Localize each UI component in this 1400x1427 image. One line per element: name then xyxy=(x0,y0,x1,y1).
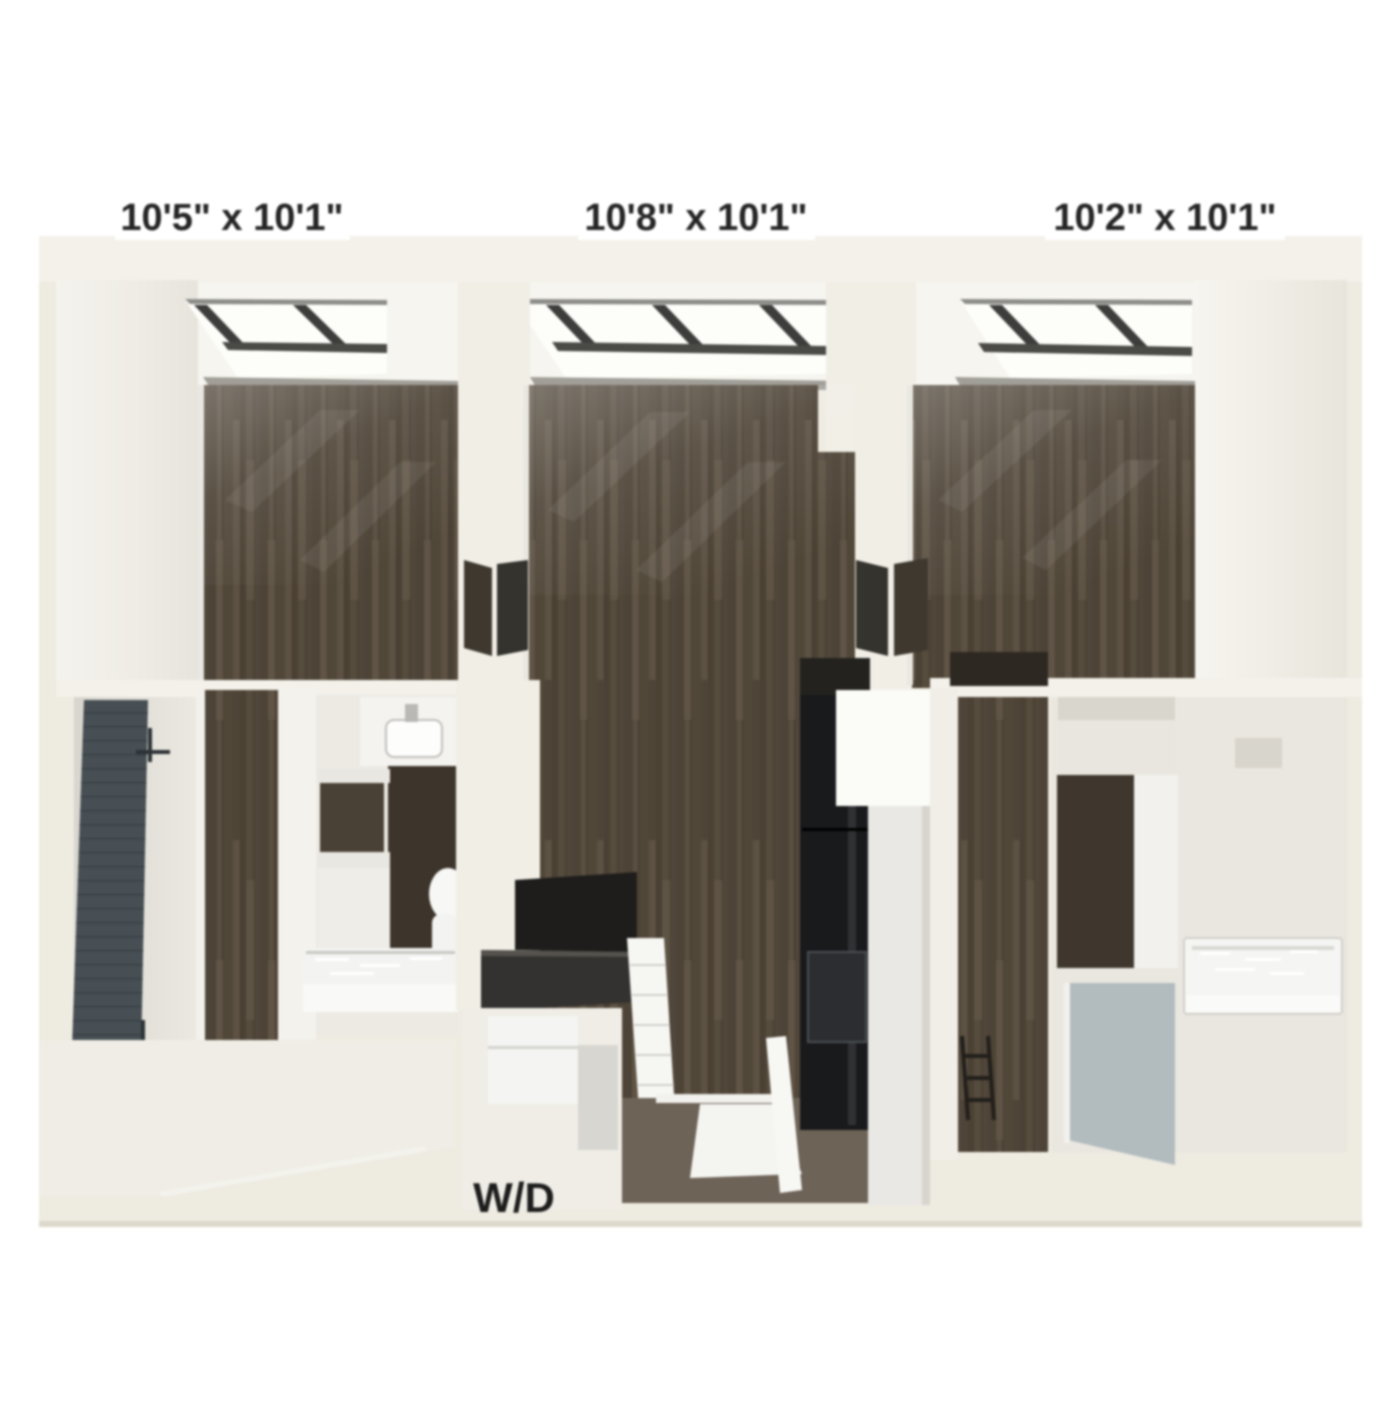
svg-text:W/D: W/D xyxy=(473,1174,555,1221)
svg-text:10'2" x 10'1": 10'2" x 10'1" xyxy=(1053,197,1276,239)
svg-text:10'5" x 10'1": 10'5" x 10'1" xyxy=(120,197,343,239)
svg-text:10'8" x 10'1": 10'8" x 10'1" xyxy=(584,197,807,239)
